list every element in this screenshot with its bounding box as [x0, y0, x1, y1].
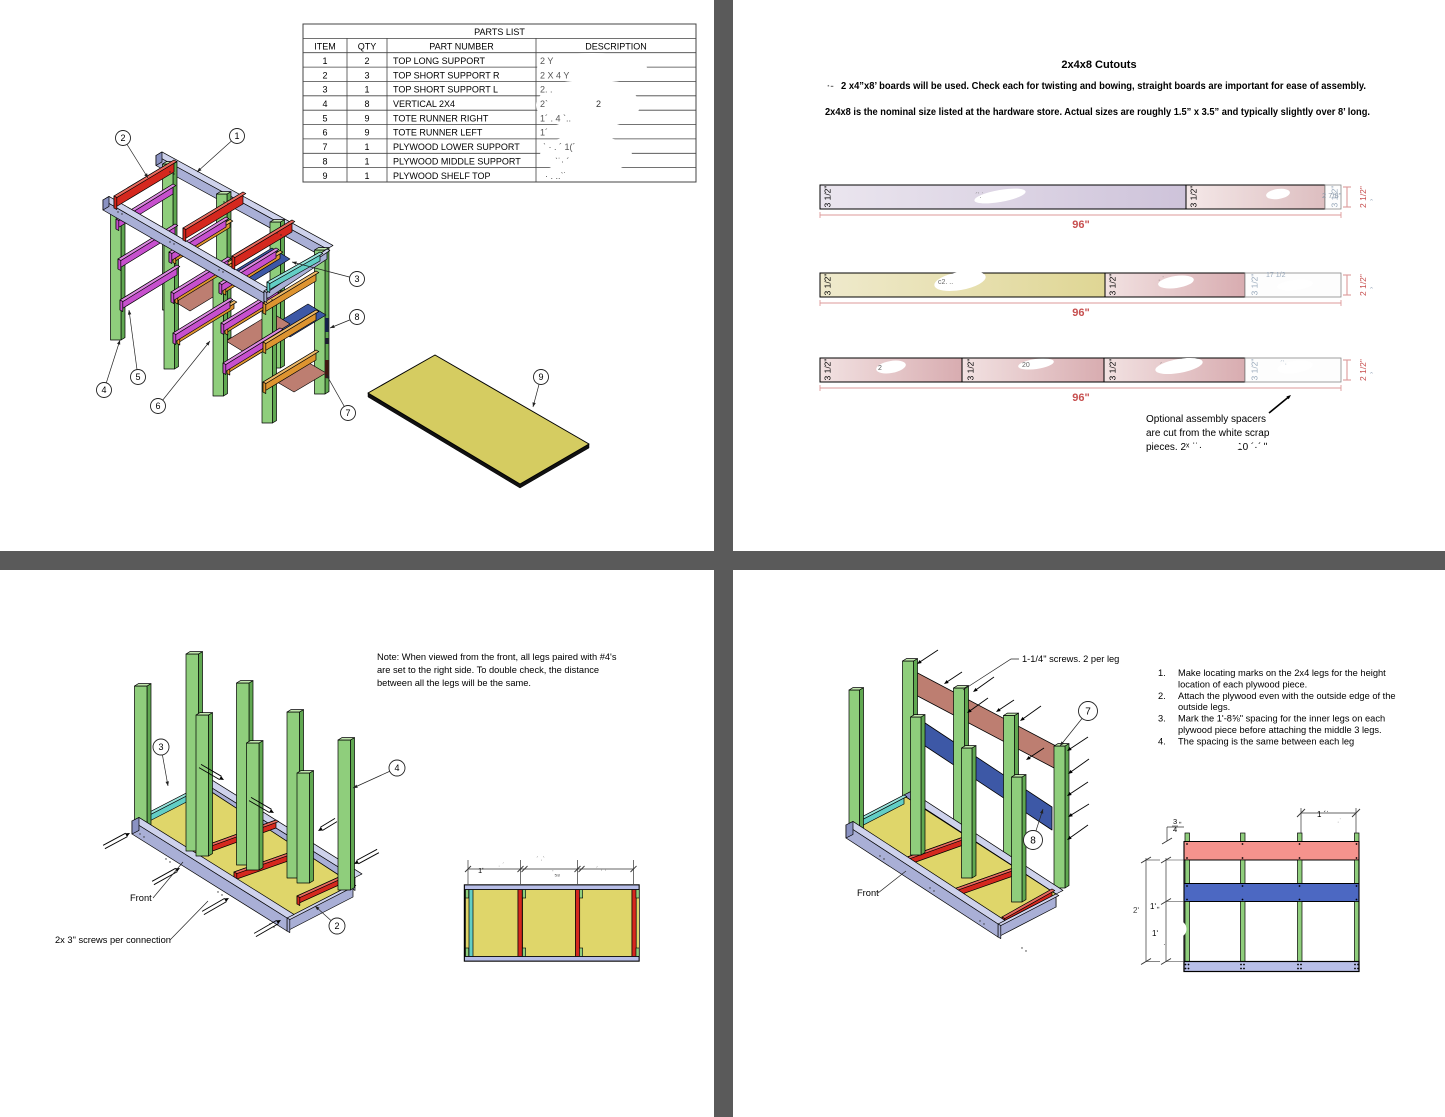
svg-text:1´: 1´	[540, 128, 548, 138]
svg-text:PARTS LIST: PARTS LIST	[474, 27, 525, 37]
svg-text:3: 3	[158, 742, 163, 752]
svg-text:1ʹ: 1ʹ	[478, 866, 484, 875]
svg-text:·˙: ·˙	[1337, 818, 1342, 826]
svg-text:´ · ·: ´ · ·	[596, 867, 607, 874]
svg-text:2 x4”x8’ boards will be used.: 2 x4”x8’ boards will be used. Check each…	[841, 80, 1366, 92]
svg-text:5: 5	[135, 372, 140, 382]
svg-text:ʺ: ʺ	[1157, 906, 1160, 914]
svg-text:2.: 2.	[1158, 691, 1166, 701]
svg-text:1: 1	[234, 131, 239, 141]
svg-text:8: 8	[322, 157, 327, 167]
svg-text:TOP SHORT SUPPORT L: TOP SHORT SUPPORT L	[393, 85, 498, 95]
svg-text:·: ·	[1163, 940, 1166, 949]
svg-text:´: ´	[1160, 363, 1162, 370]
svg-text:DESCRIPTION: DESCRIPTION	[585, 42, 647, 52]
svg-text:5: 5	[322, 113, 327, 123]
svg-text:1: 1	[322, 56, 327, 66]
svg-text:7: 7	[322, 142, 327, 152]
svg-text:9: 9	[364, 113, 369, 123]
svg-text:2: 2	[364, 56, 369, 66]
svg-text:3 1/2": 3 1/2"	[1250, 274, 1260, 296]
svg-text:Front: Front	[857, 888, 879, 898]
svg-text:ˆ: ˆ	[1370, 198, 1373, 208]
svg-text:TOTE RUNNER RIGHT: TOTE RUNNER RIGHT	[393, 113, 489, 123]
svg-text:2 1/2": 2 1/2"	[1358, 186, 1368, 208]
svg-text:Make locating marks on the 2x4: Make locating marks on the 2x4 legs for …	[1178, 668, 1386, 678]
svg-text:· ´: · ´	[498, 863, 505, 870]
svg-text:4: 4	[394, 763, 399, 773]
svg-text:The spacing is the same betwee: The spacing is the same between each leg	[1178, 736, 1354, 746]
svg-text:VERTICAL 2X4: VERTICAL 2X4	[393, 99, 455, 109]
svg-text:· ˙: · ˙	[1158, 276, 1165, 284]
svg-text:2: 2	[322, 70, 327, 80]
svg-text:9: 9	[322, 171, 327, 181]
svg-text:PLYWOOD MIDDLE SUPPORT: PLYWOOD MIDDLE SUPPORT	[393, 157, 521, 167]
svg-text:1: 1	[364, 171, 369, 181]
svg-text:6: 6	[322, 128, 327, 138]
svg-text:1 ´˙: 1 ´˙	[1317, 810, 1329, 819]
svg-text:TOP LONG SUPPORT: TOP LONG SUPPORT	[393, 56, 486, 66]
svg-text:96": 96"	[1072, 392, 1089, 404]
svg-text:ˊˋ·: ˊˋ·	[1280, 361, 1287, 368]
svg-text:2`: 2`	[540, 99, 548, 109]
svg-text:Optional assembly spacers: Optional assembly spacers	[1146, 414, 1266, 425]
svg-text:3 1/2": 3 1/2"	[823, 359, 833, 381]
svg-text:6: 6	[155, 401, 160, 411]
svg-text:PLYWOOD LOWER SUPPORT: PLYWOOD LOWER SUPPORT	[393, 142, 520, 152]
svg-text:1ʹ: 1ʹ	[1150, 902, 1156, 911]
svg-text:ITEM: ITEM	[314, 42, 336, 52]
svg-text:4: 4	[1173, 825, 1177, 834]
svg-text:1.: 1.	[1158, 668, 1166, 678]
svg-text:7: 7	[1085, 707, 1091, 718]
svg-text:3: 3	[354, 274, 359, 284]
svg-text:ˊˋ.˙: ˊˋ.˙	[975, 192, 984, 200]
svg-text:3 1/2": 3 1/2"	[1108, 274, 1118, 296]
svg-text:7: 7	[345, 408, 350, 418]
svg-text:3 1/2": 3 1/2"	[1189, 186, 1199, 208]
svg-text:4: 4	[101, 385, 106, 395]
svg-text:2x4x8 Cutouts: 2x4x8 Cutouts	[1061, 59, 1136, 71]
svg-text:1ʹ: 1ʹ	[1152, 929, 1158, 938]
svg-text:2x 3" screws per connection: 2x 3" screws per connection	[55, 935, 171, 945]
svg-text:2 7/8": 2 7/8"	[1322, 191, 1342, 200]
svg-text:are cut from the white scrap: are cut from the white scrap	[1146, 428, 1270, 439]
svg-text:TOP SHORT SUPPORT R: TOP SHORT SUPPORT R	[393, 70, 500, 80]
svg-text:8: 8	[354, 312, 359, 322]
svg-text:1: 1	[364, 142, 369, 152]
svg-text:plywood piece before attaching: plywood piece before attaching the middl…	[1178, 725, 1382, 735]
svg-text:3: 3	[364, 70, 369, 80]
svg-text:2x4x8 is the nominal size list: 2x4x8 is the nominal size listed at the …	[825, 106, 1370, 118]
svg-text:2: 2	[334, 921, 339, 931]
svg-text:2ʹ: 2ʹ	[1133, 906, 1139, 915]
svg-text:ˊ ·ˋ: ˊ ·ˋ	[536, 857, 545, 864]
svg-text:ˋ · . ´ 1(´: ˋ · . ´ 1(´	[543, 142, 576, 152]
svg-text:between all the legs will be t: between all the legs will be the same.	[377, 678, 531, 688]
svg-text:PART NUMBER: PART NUMBER	[429, 42, 494, 52]
svg-text:2: 2	[120, 133, 125, 143]
svg-text:Front: Front	[130, 893, 152, 903]
svg-text:ˆ: ˆ	[1370, 286, 1373, 296]
svg-text:3 1/2": 3 1/2"	[823, 186, 833, 208]
svg-text:17 1/2: 17 1/2	[1266, 272, 1286, 279]
svg-text:location of each plywood piece: location of each plywood piece.	[1178, 679, 1307, 689]
svg-text:2. .: 2. .	[540, 85, 553, 95]
svg-text:ˋ˙· ´: ˋ˙· ´	[555, 157, 570, 167]
svg-text:QTY: QTY	[358, 42, 377, 52]
svg-text:9: 9	[538, 372, 543, 382]
svg-text:3 1/2": 3 1/2"	[823, 274, 833, 296]
svg-text:96": 96"	[1072, 307, 1089, 319]
svg-text:Attach the plywood even with t: Attach the plywood even with the outside…	[1178, 691, 1396, 701]
svg-text:8: 8	[1030, 836, 1036, 847]
svg-text:20: 20	[1022, 362, 1030, 369]
svg-text:·-: ·-	[827, 81, 834, 92]
svg-text:3 1/2": 3 1/2"	[966, 359, 976, 381]
svg-text:4: 4	[322, 99, 327, 109]
svg-text:96": 96"	[1072, 219, 1089, 231]
svg-text:1: 1	[364, 157, 369, 167]
svg-text:outside legs.: outside legs.	[1178, 702, 1230, 712]
svg-text:1-1/4" screws. 2 per leg: 1-1/4" screws. 2 per leg	[1022, 654, 1119, 664]
svg-text:2 1/2": 2 1/2"	[1358, 359, 1368, 381]
svg-text:2 1/2": 2 1/2"	[1358, 274, 1368, 296]
svg-text:2 X 4 Y: 2 X 4 Y	[540, 70, 569, 80]
svg-text:8: 8	[364, 99, 369, 109]
svg-text:Note: When viewed from the fro: Note: When viewed from the front, all le…	[377, 652, 617, 662]
svg-text:1: 1	[364, 85, 369, 95]
svg-text:· . ..ˋ˙: · . ..ˋ˙	[545, 171, 567, 181]
svg-text:ˆ: ˆ	[1370, 371, 1373, 381]
svg-text:Mark the 1'-8⅝" spacing for th: Mark the 1'-8⅝" spacing for the inner le…	[1178, 714, 1385, 724]
svg-text:9: 9	[364, 128, 369, 138]
svg-text:are set to the right side. To: are set to the right side. To double che…	[377, 665, 599, 675]
svg-text:TOTE RUNNER LEFT: TOTE RUNNER LEFT	[393, 128, 483, 138]
svg-text:2: 2	[878, 365, 882, 372]
svg-text:PLYWOOD SHELF TOP: PLYWOOD SHELF TOP	[393, 171, 491, 181]
svg-text:3 1/2": 3 1/2"	[1108, 359, 1118, 381]
svg-text:˙₅₈: ˙₅₈	[552, 870, 560, 878]
svg-text:4.: 4.	[1158, 736, 1166, 746]
svg-text:c2. ..: c2. ..	[938, 279, 953, 286]
svg-text:3 1/2": 3 1/2"	[1250, 359, 1260, 381]
svg-text:2 Y: 2 Y	[540, 56, 553, 66]
svg-text:1´ . 4 `..: 1´ . 4 `..	[540, 113, 571, 123]
svg-text:3.: 3.	[1158, 714, 1166, 724]
svg-text:3: 3	[322, 85, 327, 95]
svg-text:ʺ: ʺ	[1179, 821, 1182, 829]
svg-text:2: 2	[596, 99, 601, 109]
